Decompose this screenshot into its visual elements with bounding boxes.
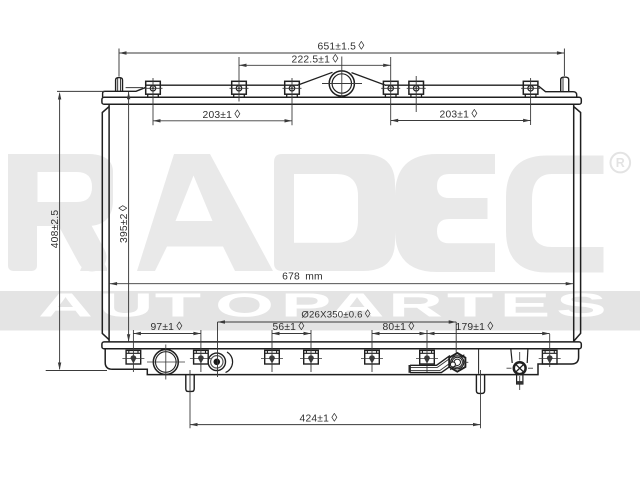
svg-text:179±1 ◊: 179±1 ◊	[456, 319, 494, 333]
svg-text:222.5±1 ◊: 222.5±1 ◊	[292, 51, 339, 65]
svg-text:97±1 ◊: 97±1 ◊	[150, 319, 182, 333]
svg-text:A: A	[38, 287, 93, 324]
svg-text:O: O	[215, 287, 274, 324]
svg-text:56±1 ◊: 56±1 ◊	[272, 319, 304, 333]
svg-text:395±2 ◊: 395±2 ◊	[116, 205, 130, 243]
svg-text:R: R	[616, 156, 625, 170]
svg-text:203±1 ◊: 203±1 ◊	[440, 107, 478, 121]
svg-text:E: E	[500, 287, 551, 324]
svg-text:203±1 ◊: 203±1 ◊	[203, 107, 241, 121]
svg-text:U: U	[99, 287, 154, 324]
svg-text:651±1.5 ◊: 651±1.5 ◊	[318, 39, 365, 53]
svg-text:678 mm: 678 mm	[282, 272, 323, 283]
svg-text:R: R	[388, 287, 443, 324]
svg-text:Ø26X350±0.6 ◊: Ø26X350±0.6 ◊	[301, 308, 370, 320]
svg-text:80±1 ◊: 80±1 ◊	[382, 319, 414, 333]
svg-text:408±2.5: 408±2.5	[50, 210, 61, 249]
svg-text:S: S	[556, 287, 607, 324]
svg-text:424±1 ◊: 424±1 ◊	[300, 411, 338, 425]
